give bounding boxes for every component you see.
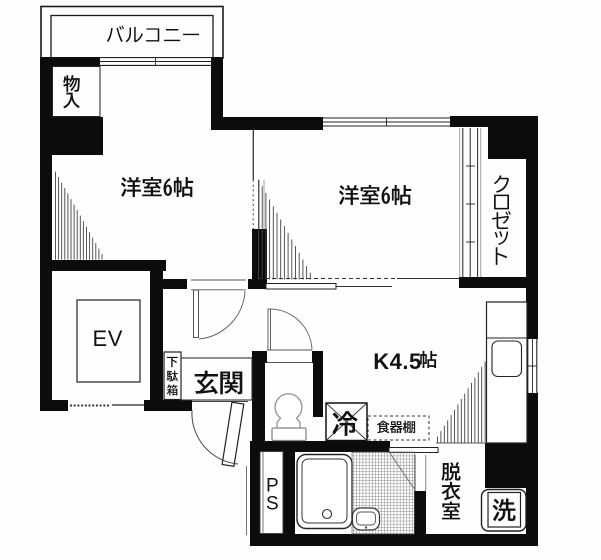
svg-text:S: S <box>266 494 279 515</box>
svg-text:K4.5: K4.5 <box>373 349 421 374</box>
svg-text:EV: EV <box>93 326 123 351</box>
